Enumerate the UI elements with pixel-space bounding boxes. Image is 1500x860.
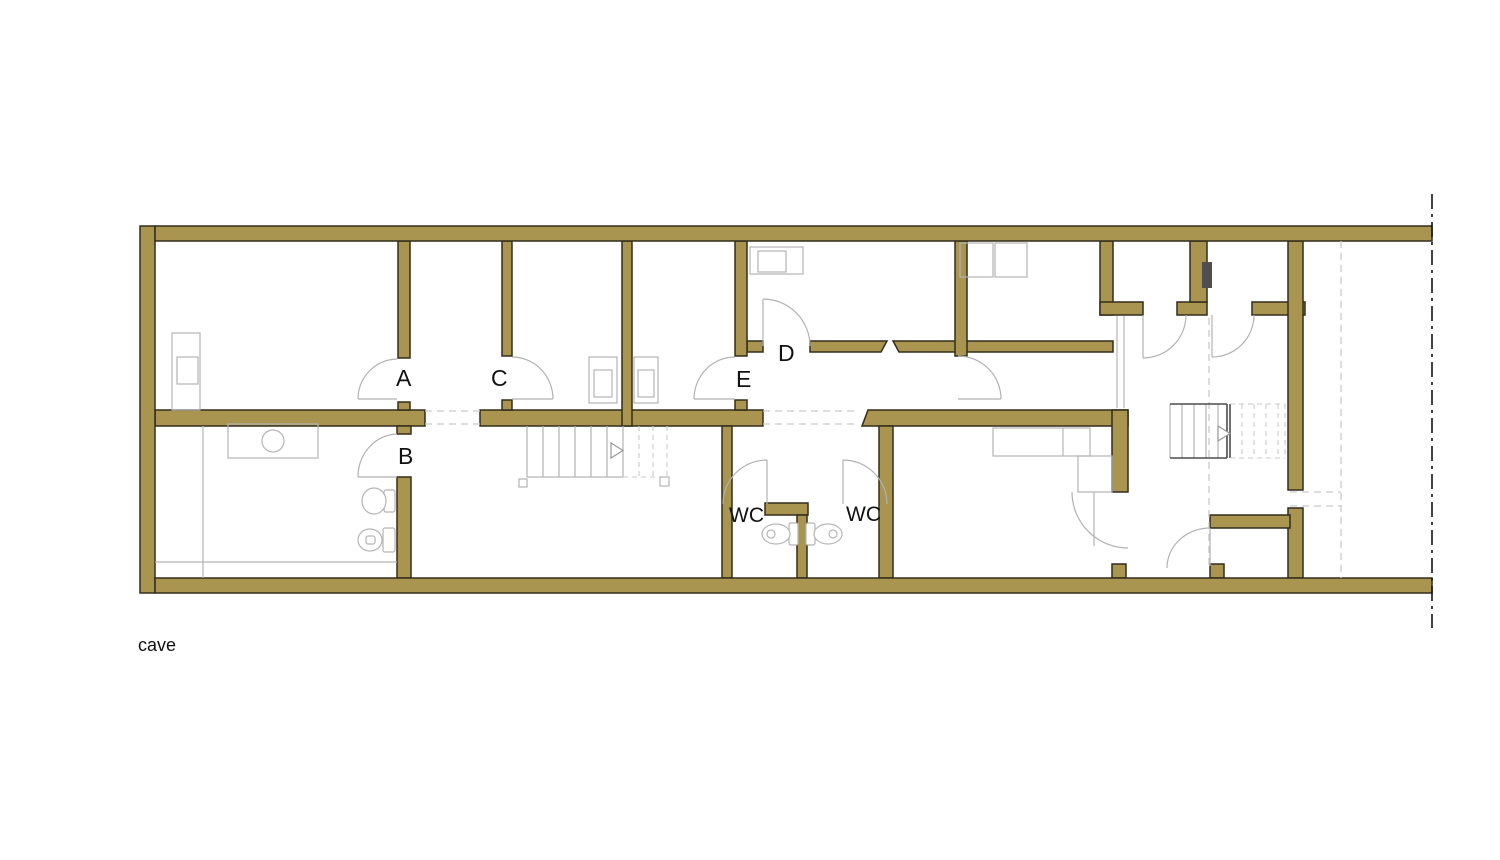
corridor-walls [155, 341, 1128, 426]
toilet-icon [362, 488, 395, 514]
door-label-c: C [491, 365, 508, 391]
duct-shaft [1202, 262, 1212, 288]
door-arc-hall-bottom [1167, 528, 1210, 568]
wc-label-left: WC [729, 504, 764, 527]
door-arc-vestibule [958, 356, 1001, 399]
door-label-a: A [396, 365, 412, 391]
stair-direction-arrow [1218, 426, 1230, 441]
wc-label-right: WC [846, 503, 881, 526]
door-arc-e [694, 357, 735, 399]
door-arc-b [358, 434, 397, 477]
toilets [358, 488, 842, 552]
door-arc-room-to-hall [1072, 492, 1128, 548]
door-label-e: E [736, 366, 751, 392]
toilet-icon [806, 523, 842, 545]
toilet-icon [762, 523, 798, 545]
toilet-icon [358, 528, 395, 552]
door-arc-d [763, 299, 810, 346]
floor-title: cave [138, 635, 176, 655]
door-label-d: D [778, 340, 795, 366]
door-arc-c [512, 357, 553, 399]
staircase-main [519, 426, 669, 487]
stair-direction-arrow [611, 443, 623, 458]
floor-plan-drawing: A B C D E WC WC cave [0, 0, 1500, 860]
door-arc-a [358, 359, 397, 399]
door-labels: A B C D E WC WC [396, 340, 881, 527]
staircase-right [1170, 404, 1285, 458]
door-label-b: B [398, 443, 413, 469]
door-arc-closet-2 [1212, 315, 1254, 357]
floor-plan-page: A B C D E WC WC cave [0, 0, 1500, 860]
door-arc-closet-1 [1143, 315, 1186, 358]
